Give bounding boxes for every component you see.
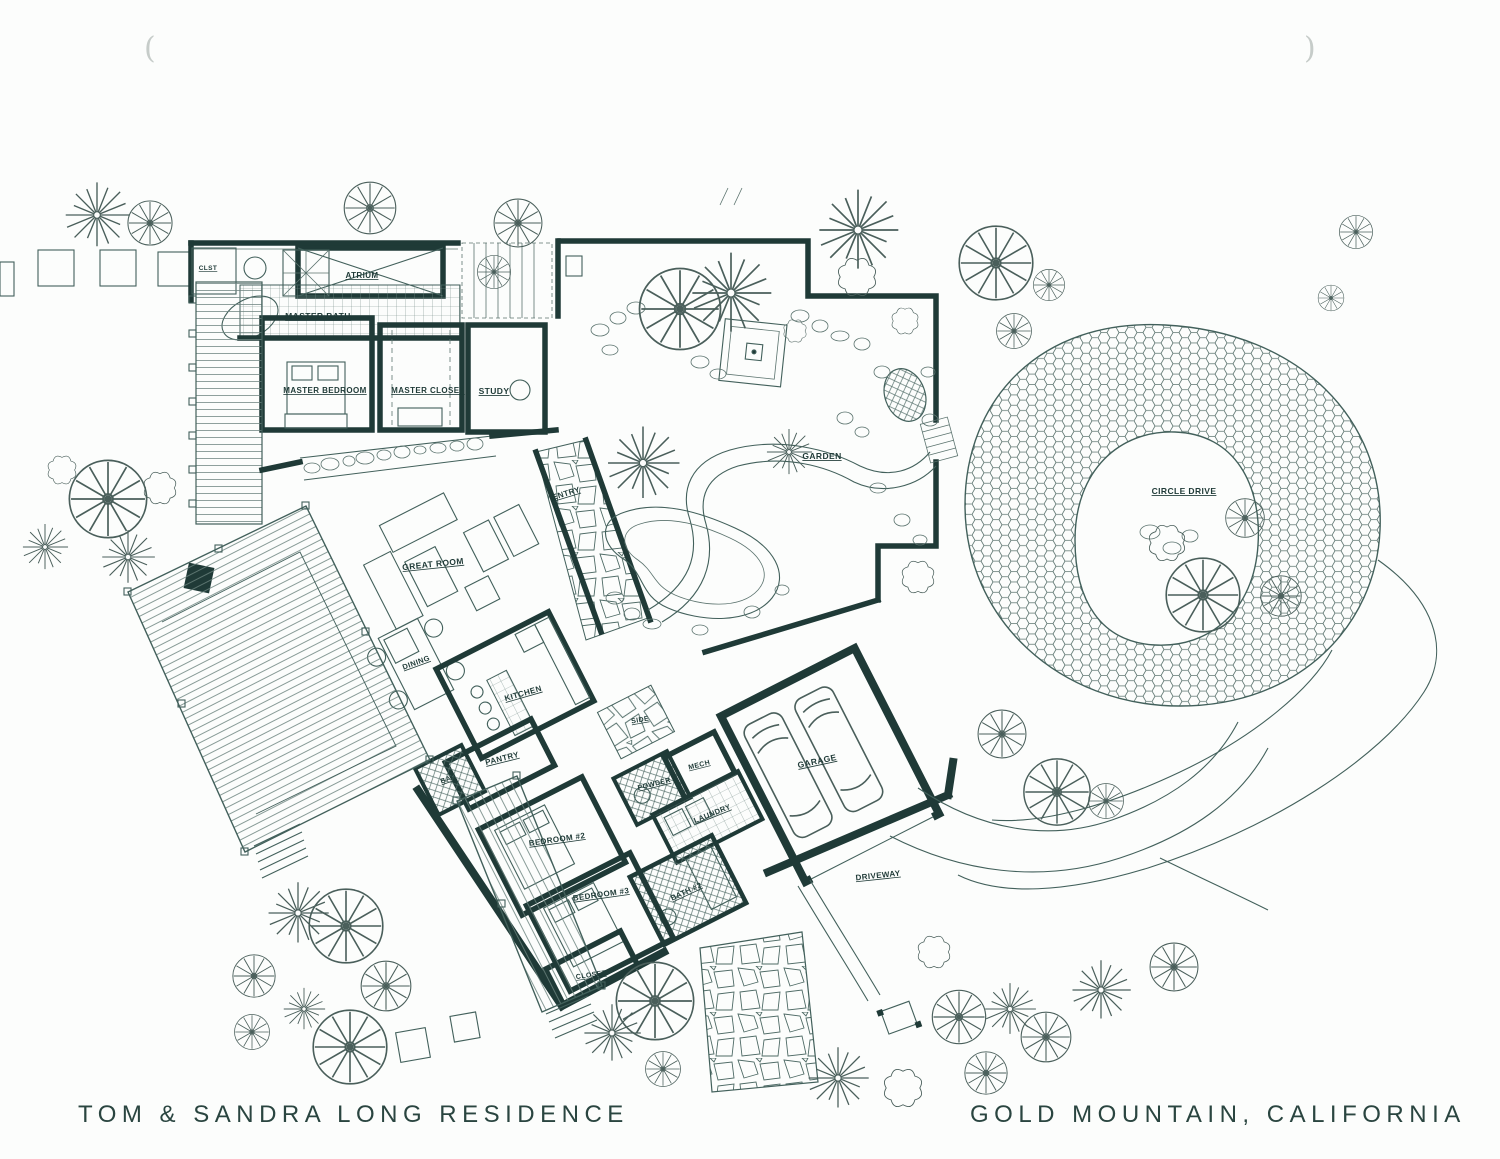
label-circle-drive: CIRCLE DRIVE	[1152, 486, 1217, 496]
label-clst: CLST	[199, 265, 218, 272]
svg-text:(: (	[144, 31, 156, 66]
label-master-bath: MASTER BATH	[285, 311, 351, 321]
label-garden: GARDEN	[802, 451, 841, 461]
label-atrium: ATRIUM	[346, 271, 379, 280]
svg-text:): )	[1304, 31, 1316, 66]
plan-title: TOM & SANDRA LONG RESIDENCE	[78, 1101, 629, 1128]
drawing-sheet: ( )	[0, 0, 1500, 1159]
site-plan-drawing: ( )	[0, 0, 1500, 1159]
label-master-closet: MASTER CLOSET	[391, 386, 465, 395]
plan-location: GOLD MOUNTAIN, CALIFORNIA	[970, 1101, 1466, 1128]
label-study: STUDY	[479, 386, 510, 396]
label-master-bedroom: MASTER BEDROOM	[283, 386, 366, 395]
